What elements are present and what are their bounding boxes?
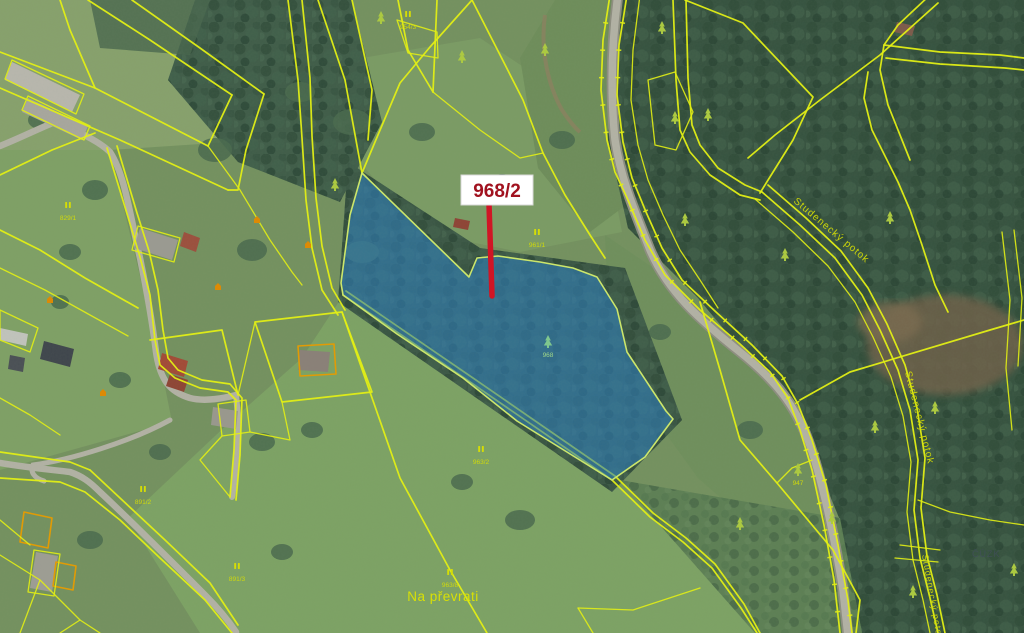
parcel-label-text: 968/2 <box>473 181 521 202</box>
leader-line <box>489 204 492 296</box>
cadastral-map-canvas[interactable]: 961/1 963/2 963/8 891/2 829/1 954/3 891/… <box>0 0 1024 633</box>
photo-grain-overlay <box>0 0 1024 633</box>
map-svg: 961/1 963/2 963/8 891/2 829/1 954/3 891/… <box>0 0 1024 633</box>
